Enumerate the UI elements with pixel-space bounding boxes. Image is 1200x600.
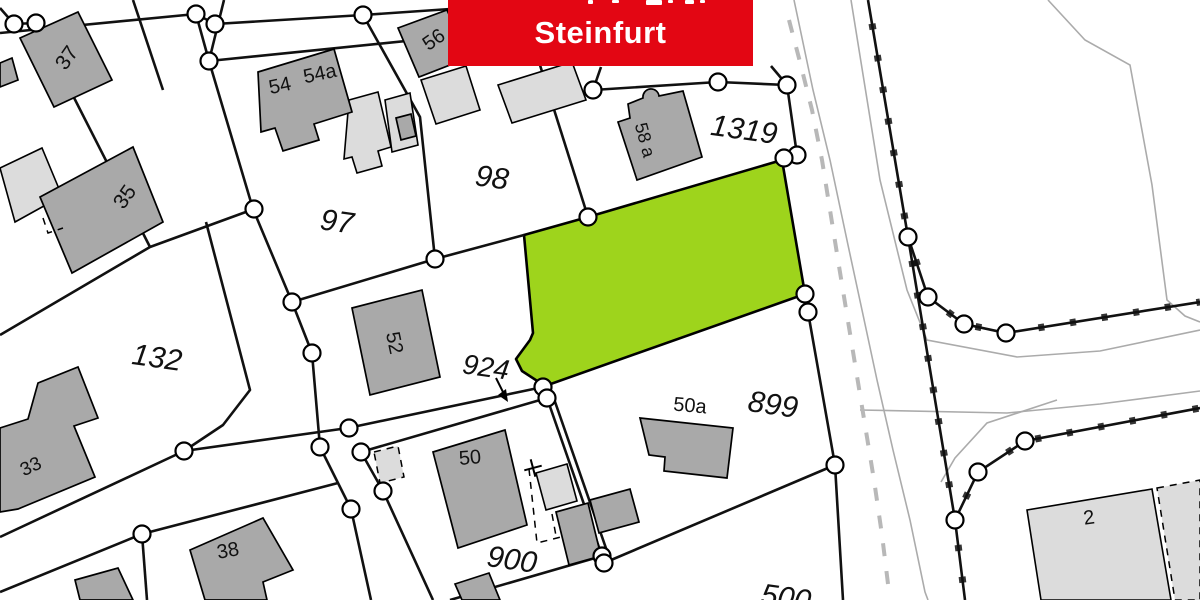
house-number-label: 54	[267, 73, 293, 99]
road-edge-line	[794, 0, 928, 600]
boundary-point	[539, 390, 556, 407]
steinfurt-banner: Steinfurt	[448, 0, 753, 66]
parcel-number-label: 98	[473, 159, 511, 196]
fence-tick-marks	[908, 237, 1200, 333]
building-light	[536, 464, 577, 510]
boundary-point	[970, 464, 987, 481]
building-light	[1027, 489, 1171, 600]
boundary-point	[304, 345, 321, 362]
boundary-point	[827, 457, 844, 474]
parcel-boundary-line	[604, 465, 835, 563]
cadastral-map: 979813213199248999005003735335454a5658 a…	[0, 0, 1200, 600]
road-edge-line	[1048, 0, 1200, 322]
building	[75, 568, 133, 600]
boundary-point	[585, 82, 602, 99]
boundary-point	[6, 16, 23, 33]
boundary-point	[284, 294, 301, 311]
parcel-boundary-line	[142, 534, 147, 600]
boundary-point	[375, 483, 392, 500]
highlighted-parcel	[516, 160, 805, 386]
clipped-text-fragment	[646, 0, 662, 5]
clipped-text-fragment	[685, 0, 694, 4]
building	[190, 518, 293, 600]
parcel-number-label: 97	[318, 203, 357, 241]
parcel-number-label: 924	[461, 348, 512, 385]
road-edge-line	[851, 0, 1200, 357]
boundary-point	[134, 526, 151, 543]
banner-text: Steinfurt	[535, 15, 667, 51]
parcel-boundary-line	[0, 483, 338, 592]
boundary-point	[201, 53, 218, 70]
building	[640, 418, 733, 478]
parcel-number-label: 899	[746, 385, 800, 425]
parcel-boundary-line	[196, 9, 450, 24]
boundary-point	[797, 286, 814, 303]
building	[455, 573, 500, 600]
boundary-point	[1017, 433, 1034, 450]
fence-boundary-line	[908, 237, 1200, 333]
boundary-point	[343, 501, 360, 518]
parcel-number-label: 900	[485, 540, 539, 580]
boundary-point	[710, 74, 727, 91]
building	[618, 89, 702, 180]
building-light	[344, 92, 391, 173]
house-number-label: 50	[458, 446, 482, 470]
building	[590, 489, 639, 533]
boundary-point	[312, 439, 329, 456]
boundary-point	[900, 229, 917, 246]
boundary-point	[596, 555, 613, 572]
boundary-point	[580, 209, 597, 226]
clipped-text-fragment	[612, 0, 619, 3]
boundary-point	[353, 444, 370, 461]
parcel-number-label: 1319	[709, 109, 780, 151]
boundary-point	[920, 289, 937, 306]
building	[0, 367, 98, 512]
dashed-detail-line	[552, 514, 556, 536]
parcel-number-label: 132	[130, 338, 184, 378]
boundary-point	[998, 325, 1015, 342]
building-light	[498, 62, 586, 123]
clipped-text-fragment	[700, 0, 705, 3]
boundary-point	[427, 251, 444, 268]
boundary-point	[176, 443, 193, 460]
parcel-boundary-line	[133, 0, 163, 90]
boundary-point	[246, 201, 263, 218]
building	[40, 147, 163, 273]
boundary-point	[341, 420, 358, 437]
boundary-point	[779, 77, 796, 94]
clipped-text-fragment	[588, 0, 593, 4]
parcel-boundary-line	[593, 82, 787, 90]
parcel-number-label: 500	[759, 578, 813, 600]
boundary-point	[207, 16, 224, 33]
building	[0, 58, 18, 87]
building-dashed-outline	[374, 446, 404, 483]
clipped-text-fragment	[668, 0, 673, 3]
boundary-point	[800, 304, 817, 321]
boundary-point	[355, 7, 372, 24]
house-number-label: 52	[381, 330, 407, 356]
house-number-label: 50a	[672, 394, 708, 419]
cadastral-map-screenshot: 979813213199248999005003735335454a5658 a…	[0, 0, 1200, 600]
parcel-boundary-line	[435, 235, 524, 259]
boundary-point	[776, 150, 793, 167]
building-light	[421, 66, 480, 124]
building	[258, 49, 352, 151]
boundary-point	[956, 316, 973, 333]
house-number-label: 38	[215, 538, 241, 564]
boundary-point	[188, 6, 205, 23]
boundary-point	[28, 15, 45, 32]
boundary-point	[947, 512, 964, 529]
